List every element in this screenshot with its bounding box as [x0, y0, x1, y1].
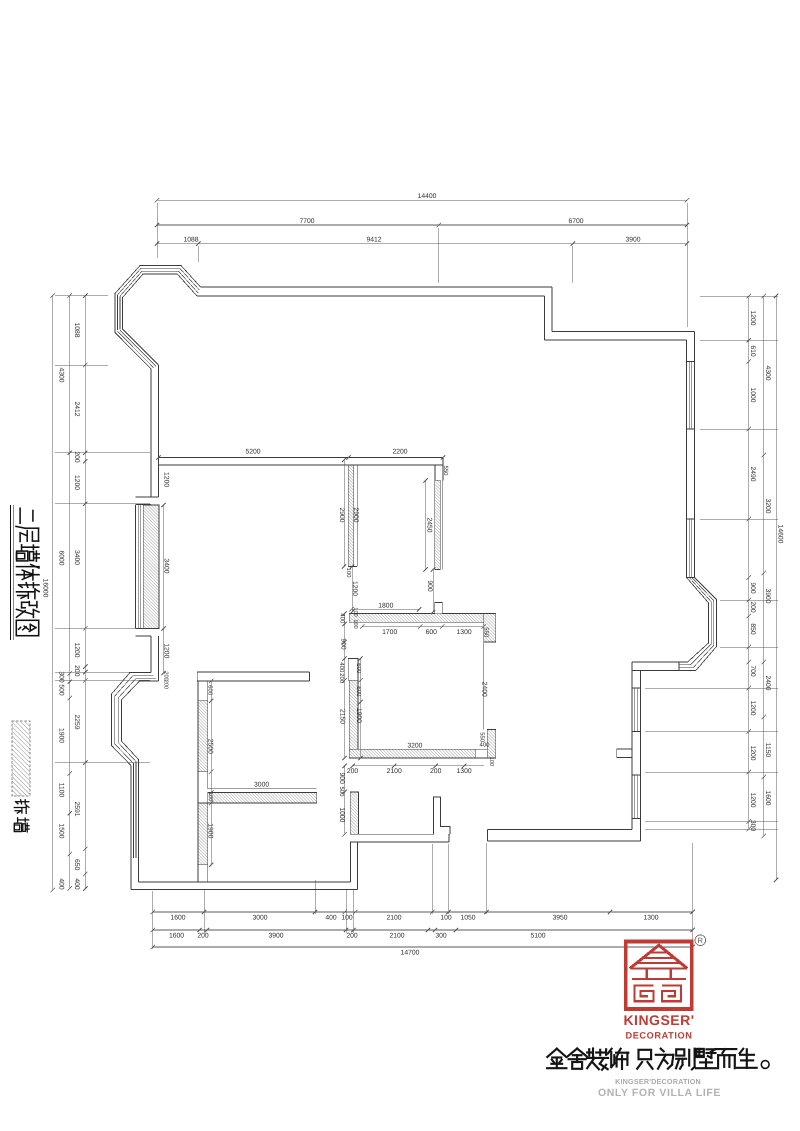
svg-text:3200: 3200 — [407, 742, 422, 749]
svg-text:DECORATION: DECORATION — [625, 1031, 692, 1041]
svg-text:400: 400 — [479, 742, 490, 749]
svg-text:6700: 6700 — [568, 218, 583, 225]
svg-text:1600: 1600 — [764, 790, 771, 805]
svg-text:3950: 3950 — [552, 915, 567, 922]
svg-text:200: 200 — [197, 933, 209, 940]
svg-text:1500: 1500 — [58, 823, 65, 838]
svg-text:4300: 4300 — [58, 367, 65, 382]
svg-text:610: 610 — [749, 345, 756, 357]
svg-text:1800: 1800 — [378, 602, 393, 609]
svg-text:3000: 3000 — [252, 915, 267, 922]
svg-text:1200: 1200 — [73, 475, 80, 490]
svg-text:650: 650 — [73, 859, 80, 871]
svg-text:3900: 3900 — [625, 236, 640, 243]
svg-text:1088: 1088 — [73, 322, 80, 337]
svg-text:2500: 2500 — [207, 739, 214, 754]
svg-text:1200: 1200 — [749, 700, 756, 715]
svg-text:1900: 1900 — [207, 823, 214, 838]
svg-text:16000: 16000 — [42, 579, 49, 598]
svg-text:1200: 1200 — [749, 745, 756, 760]
svg-text:3400: 3400 — [162, 558, 169, 573]
svg-text:550: 550 — [479, 732, 486, 743]
svg-text:R: R — [698, 936, 704, 945]
svg-text:1300: 1300 — [643, 915, 658, 922]
svg-text:400: 400 — [338, 662, 345, 673]
svg-text:2450: 2450 — [426, 517, 433, 532]
svg-text:100: 100 — [488, 757, 494, 766]
svg-text:100: 100 — [341, 915, 353, 922]
svg-text:1200: 1200 — [163, 472, 170, 487]
svg-text:600: 600 — [355, 686, 362, 697]
svg-text:600: 600 — [207, 685, 214, 696]
svg-text:500: 500 — [338, 786, 345, 797]
svg-text:1600: 1600 — [169, 933, 184, 940]
svg-text:400: 400 — [58, 878, 65, 890]
svg-text:3200: 3200 — [764, 498, 771, 513]
svg-text:200: 200 — [338, 673, 345, 684]
svg-text:1200: 1200 — [162, 643, 169, 658]
svg-text:3000: 3000 — [254, 782, 269, 789]
svg-text:700: 700 — [749, 665, 756, 677]
svg-text:100: 100 — [352, 607, 358, 616]
svg-text:100: 100 — [345, 567, 352, 578]
svg-text:7700: 7700 — [299, 218, 314, 225]
svg-text:900: 900 — [749, 582, 756, 594]
svg-text:14600: 14600 — [777, 525, 784, 544]
svg-text:100: 100 — [440, 915, 452, 922]
svg-text:500: 500 — [58, 684, 65, 696]
svg-text:1600: 1600 — [170, 915, 185, 922]
svg-text:9412: 9412 — [366, 236, 381, 243]
svg-text:KINGSER': KINGSER' — [623, 1012, 694, 1028]
svg-text:1900: 1900 — [58, 728, 65, 743]
svg-text:14700: 14700 — [401, 950, 420, 957]
svg-text:550: 550 — [442, 465, 449, 476]
svg-text:ONLY FOR VILLA LIFE: ONLY FOR VILLA LIFE — [598, 1087, 721, 1099]
svg-text:900: 900 — [338, 773, 345, 785]
svg-text:1000: 1000 — [749, 387, 756, 402]
svg-text:5200: 5200 — [245, 449, 260, 456]
svg-text:200: 200 — [346, 933, 358, 940]
svg-text:2490: 2490 — [749, 466, 756, 481]
svg-text:1100: 1100 — [58, 783, 65, 798]
svg-text:200: 200 — [430, 768, 442, 775]
svg-text:400: 400 — [325, 915, 337, 922]
svg-text:3900: 3900 — [268, 933, 283, 940]
svg-text:2100: 2100 — [387, 768, 402, 775]
svg-text:3900: 3900 — [764, 588, 771, 603]
svg-text:1200: 1200 — [749, 792, 756, 807]
svg-text:1200: 1200 — [73, 642, 80, 657]
svg-text:2400: 2400 — [764, 675, 771, 690]
svg-text:2400: 2400 — [480, 682, 487, 697]
svg-text:400: 400 — [73, 878, 80, 890]
svg-text:200: 200 — [73, 451, 80, 463]
svg-text:1050: 1050 — [460, 915, 475, 922]
svg-text:2100: 2100 — [386, 915, 401, 922]
svg-text:550: 550 — [482, 627, 489, 638]
svg-text:200: 200 — [347, 768, 359, 775]
svg-text:1200: 1200 — [749, 310, 756, 325]
svg-text:850: 850 — [749, 623, 756, 635]
svg-text:200: 200 — [163, 680, 169, 689]
svg-text:100: 100 — [352, 619, 358, 628]
svg-text:1300: 1300 — [457, 768, 472, 775]
svg-text:3400: 3400 — [73, 550, 80, 565]
svg-text:5100: 5100 — [530, 933, 545, 940]
svg-text:200: 200 — [749, 601, 756, 613]
svg-text:4300: 4300 — [764, 365, 771, 380]
svg-text:1300: 1300 — [457, 629, 472, 636]
svg-text:900: 900 — [426, 580, 433, 592]
svg-text:300: 300 — [435, 933, 447, 940]
svg-text:1000: 1000 — [338, 807, 345, 822]
svg-text:2900: 2900 — [352, 507, 359, 522]
svg-text:2100: 2100 — [389, 933, 404, 940]
svg-text:1700: 1700 — [382, 629, 397, 636]
svg-text:1088: 1088 — [183, 236, 198, 243]
svg-text:300: 300 — [58, 671, 65, 683]
svg-text:600: 600 — [426, 629, 438, 636]
svg-text:14400: 14400 — [418, 193, 437, 200]
svg-text:2412: 2412 — [73, 401, 80, 416]
svg-text:600: 600 — [355, 663, 362, 674]
svg-text:2259: 2259 — [73, 714, 80, 729]
svg-text:2591: 2591 — [73, 801, 80, 816]
svg-text:1150: 1150 — [764, 743, 771, 758]
svg-text:200: 200 — [73, 665, 80, 677]
svg-text:6000: 6000 — [58, 550, 65, 565]
svg-text:KINGSER'DECORATION: KINGSER'DECORATION — [615, 1077, 701, 1086]
svg-text:2200: 2200 — [392, 449, 407, 456]
